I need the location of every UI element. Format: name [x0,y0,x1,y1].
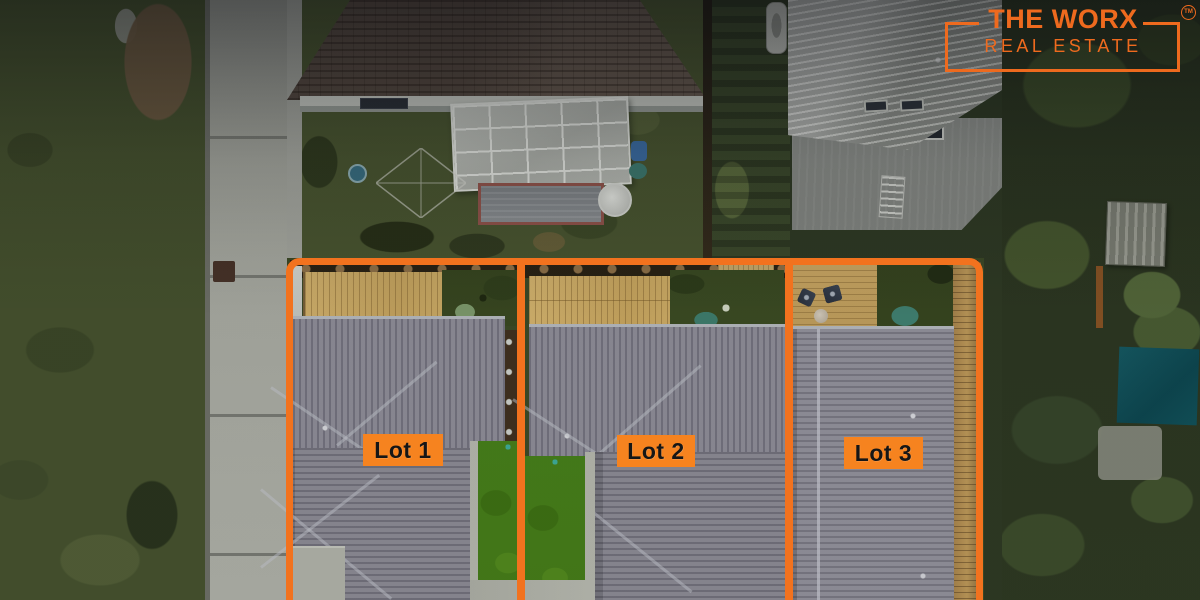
skylight [864,99,889,112]
blue-barrel [631,141,647,161]
window [360,98,408,109]
old-house-tiled-roof [287,0,707,100]
water-tank [598,183,632,217]
lot-1-label: Lot 1 [363,434,443,466]
aerial-photo: Lot 1 Lot 2 Lot 3 THE WORX REAL ESTATE T… [0,0,1200,600]
trees-and-garden-right [1002,0,1200,600]
lot-boundary-outline [286,258,983,600]
logo-brand-name: THE WORX [971,4,1155,35]
lot-3-label: Lot 3 [844,437,923,469]
logo-frame [945,69,1180,72]
the-worx-real-estate-logo: THE WORX REAL ESTATE TM [943,4,1199,76]
conservatory-glass-roof [450,96,632,192]
teal-barrel [629,163,647,179]
logo-brand-subtitle: REAL ESTATE [971,36,1155,57]
lounge-chair [879,175,906,219]
lot-divider-1-2 [517,265,525,600]
old-house-deck [478,183,604,225]
lot-2-label: Lot 2 [617,435,695,467]
trademark-icon: TM [1181,5,1196,20]
concrete-pad [1098,426,1162,480]
rotary-clothesline [376,148,466,218]
rusty-strip [1096,266,1103,328]
lawn-left [0,0,212,600]
teal-tarp [1117,347,1200,426]
bathtub [766,2,787,54]
driveway-mat [213,261,235,282]
skylight [900,98,925,111]
lot-divider-2-3 [785,265,793,600]
fence [703,0,712,260]
logo-frame [945,22,948,72]
garden-shed [1105,201,1167,267]
driveway [205,0,289,600]
small-pool [348,164,367,183]
logo-frame [1177,22,1180,72]
